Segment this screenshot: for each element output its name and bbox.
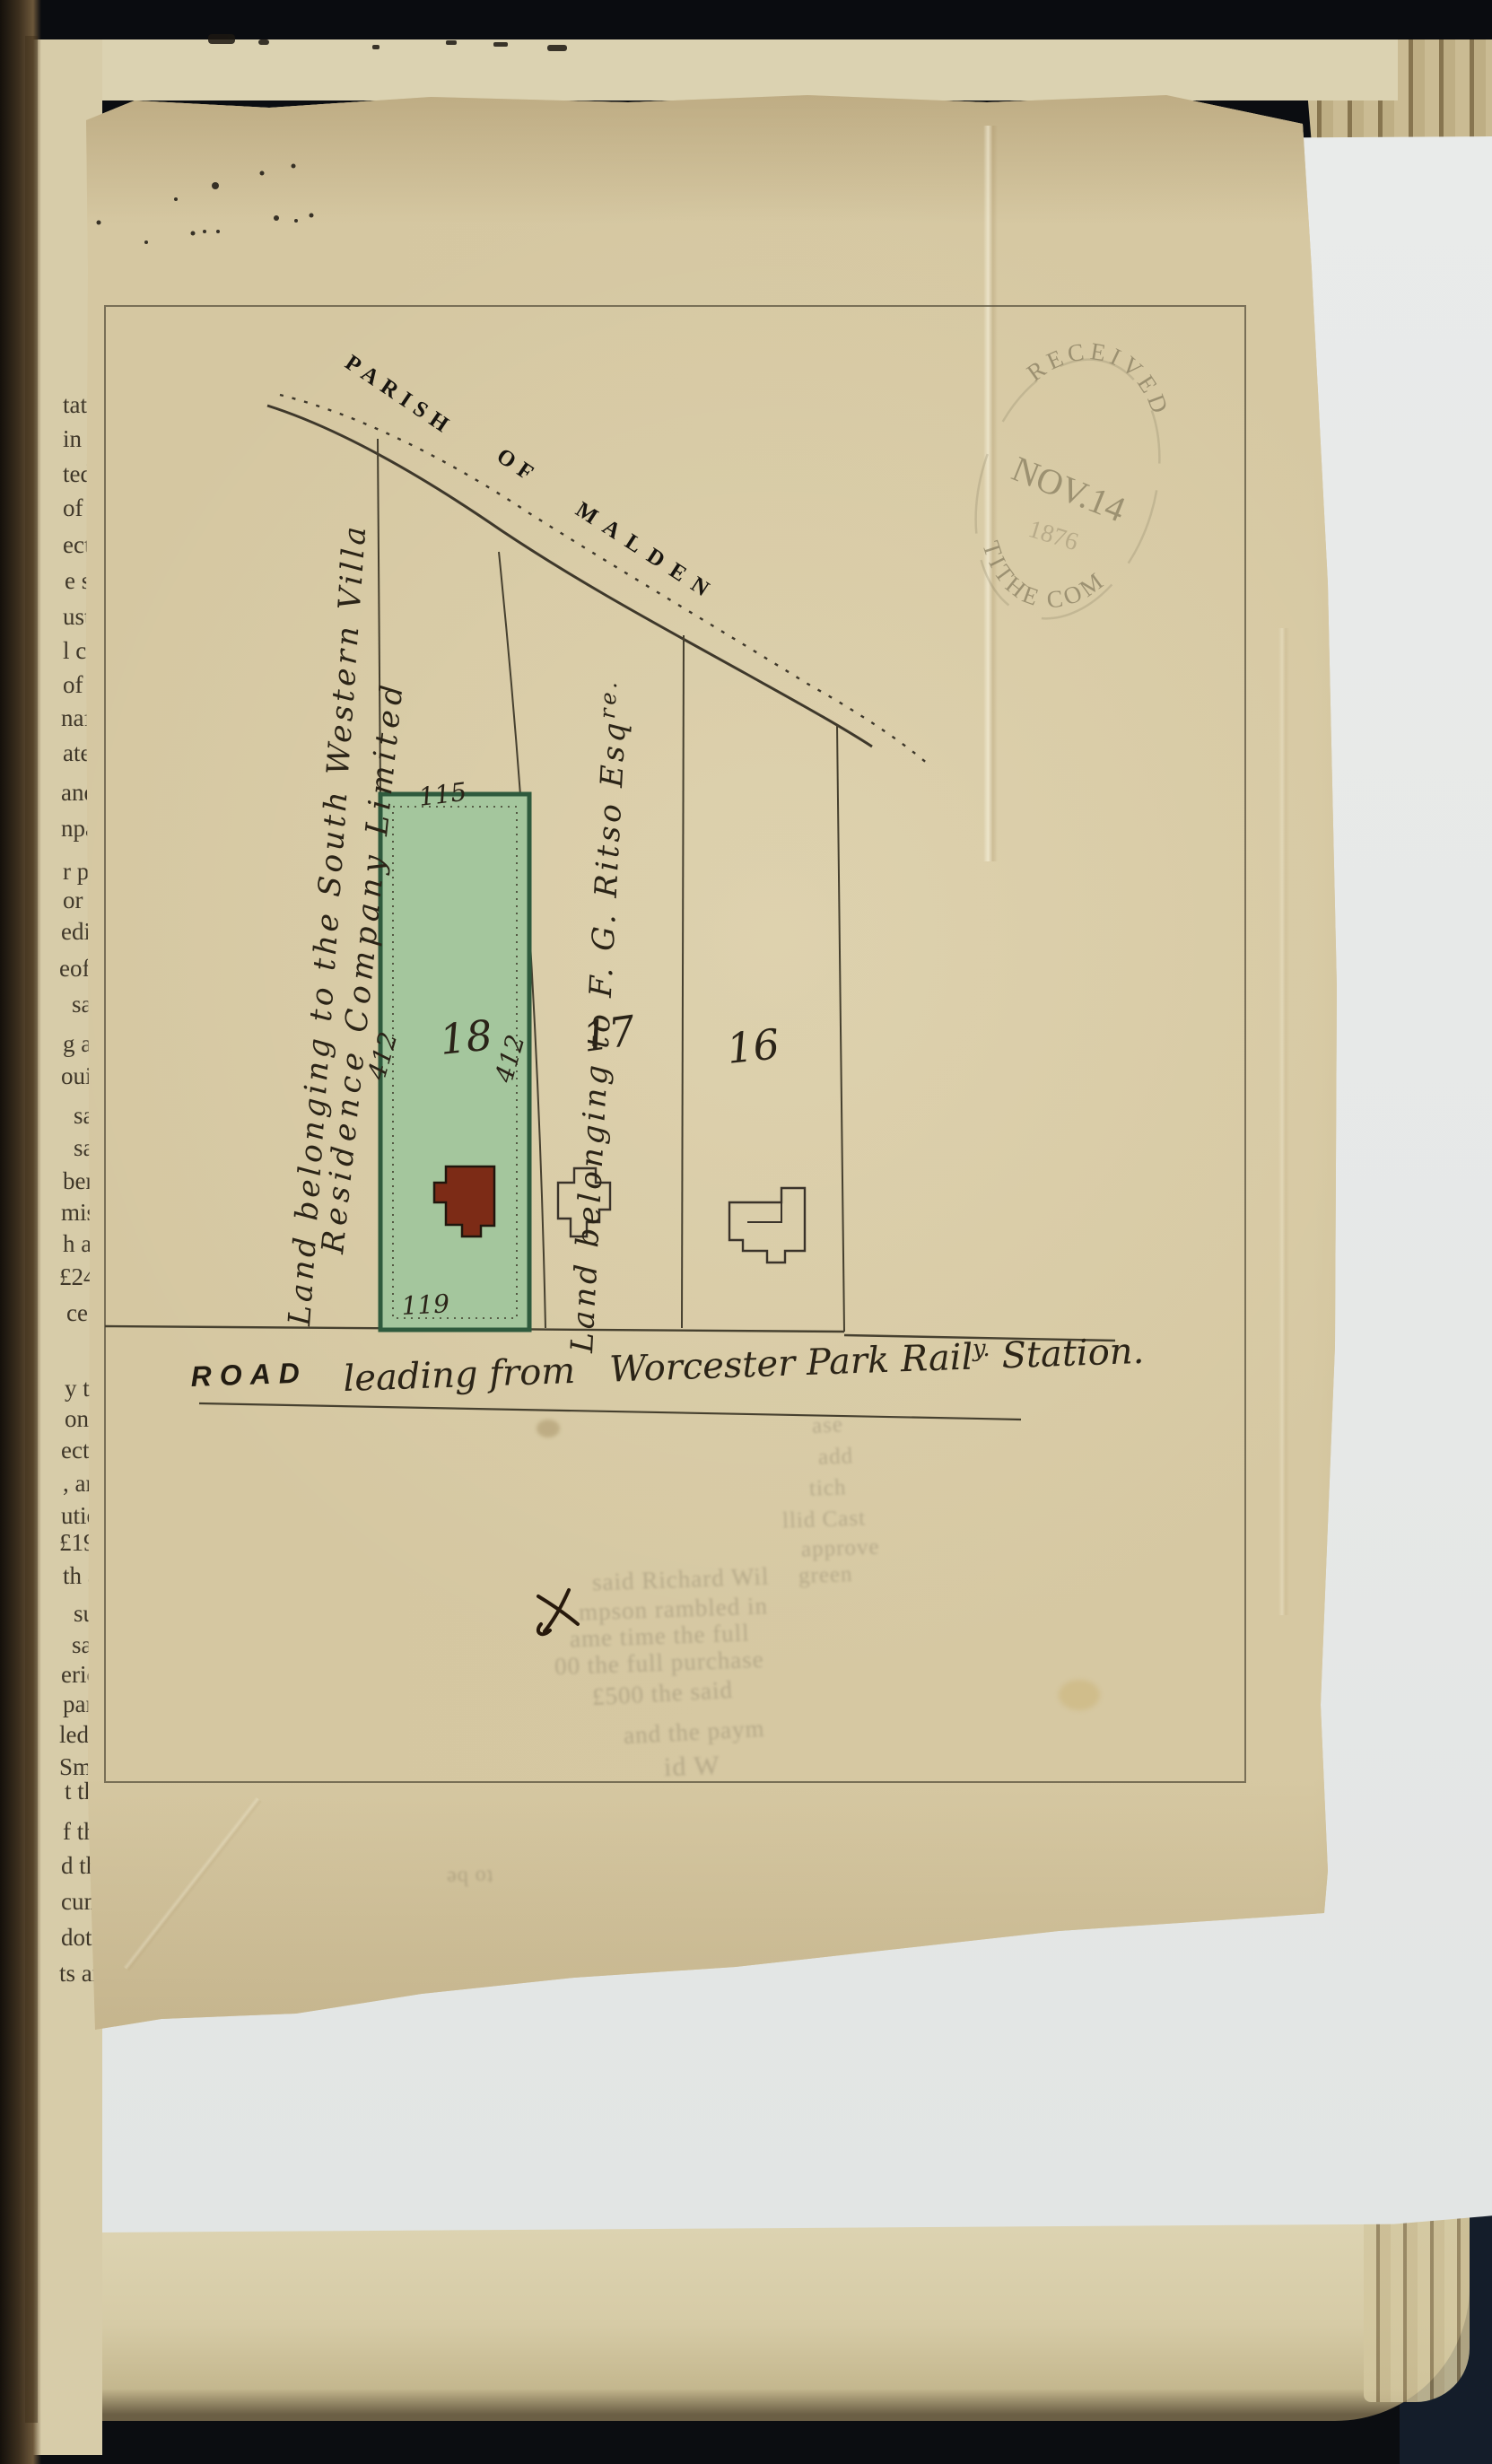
stamp-date-text: NOV.14 [1007, 448, 1131, 529]
stamp-year-text: 1876 [1025, 515, 1082, 556]
road-bottom-line [199, 1403, 1021, 1420]
owner-17-superscript: re. [595, 677, 622, 720]
plot-18-number: 18 [438, 1010, 495, 1064]
plan-drawing: PARISH OF MALDEN 18 17 16 115 119 412 41… [0, 0, 1492, 2464]
plot-line-16-right [837, 725, 844, 1332]
parish-of-malden-label: PARISH OF MALDEN [341, 351, 722, 607]
building-outline-plot-16-inner [747, 1202, 781, 1222]
received-date-stamp: RECEIVED NOV.14 1876 TITHE COM [946, 316, 1196, 642]
road-superscript: y. [971, 1335, 990, 1363]
ink-cross-mark [538, 1590, 578, 1634]
ink-specks [97, 34, 568, 244]
parish-word: PARISH [341, 351, 459, 441]
plot-line-17-16 [682, 635, 684, 1328]
stamp-received-text: RECEIVED [1017, 318, 1190, 427]
scanned-book-opening: tatein ttedof tecte sustel coof tnaftate… [0, 0, 1492, 2464]
frontage-115: 115 [417, 777, 468, 812]
of-word: OF [493, 444, 544, 490]
building-outline-plot-16 [729, 1188, 805, 1263]
plot-16-number: 16 [725, 1019, 782, 1073]
road-tail-text: Station. [990, 1331, 1145, 1377]
road-word: ROAD [190, 1356, 308, 1393]
road-label: ROAD leading from Worcester Park Raily. … [190, 1330, 1145, 1400]
road-cursive-label: leading from Worcester Park Raily. Stati… [343, 1330, 1145, 1400]
frontage-119: 119 [401, 1289, 450, 1321]
road-cursive-text: leading from Worcester Park Rail [343, 1337, 973, 1400]
